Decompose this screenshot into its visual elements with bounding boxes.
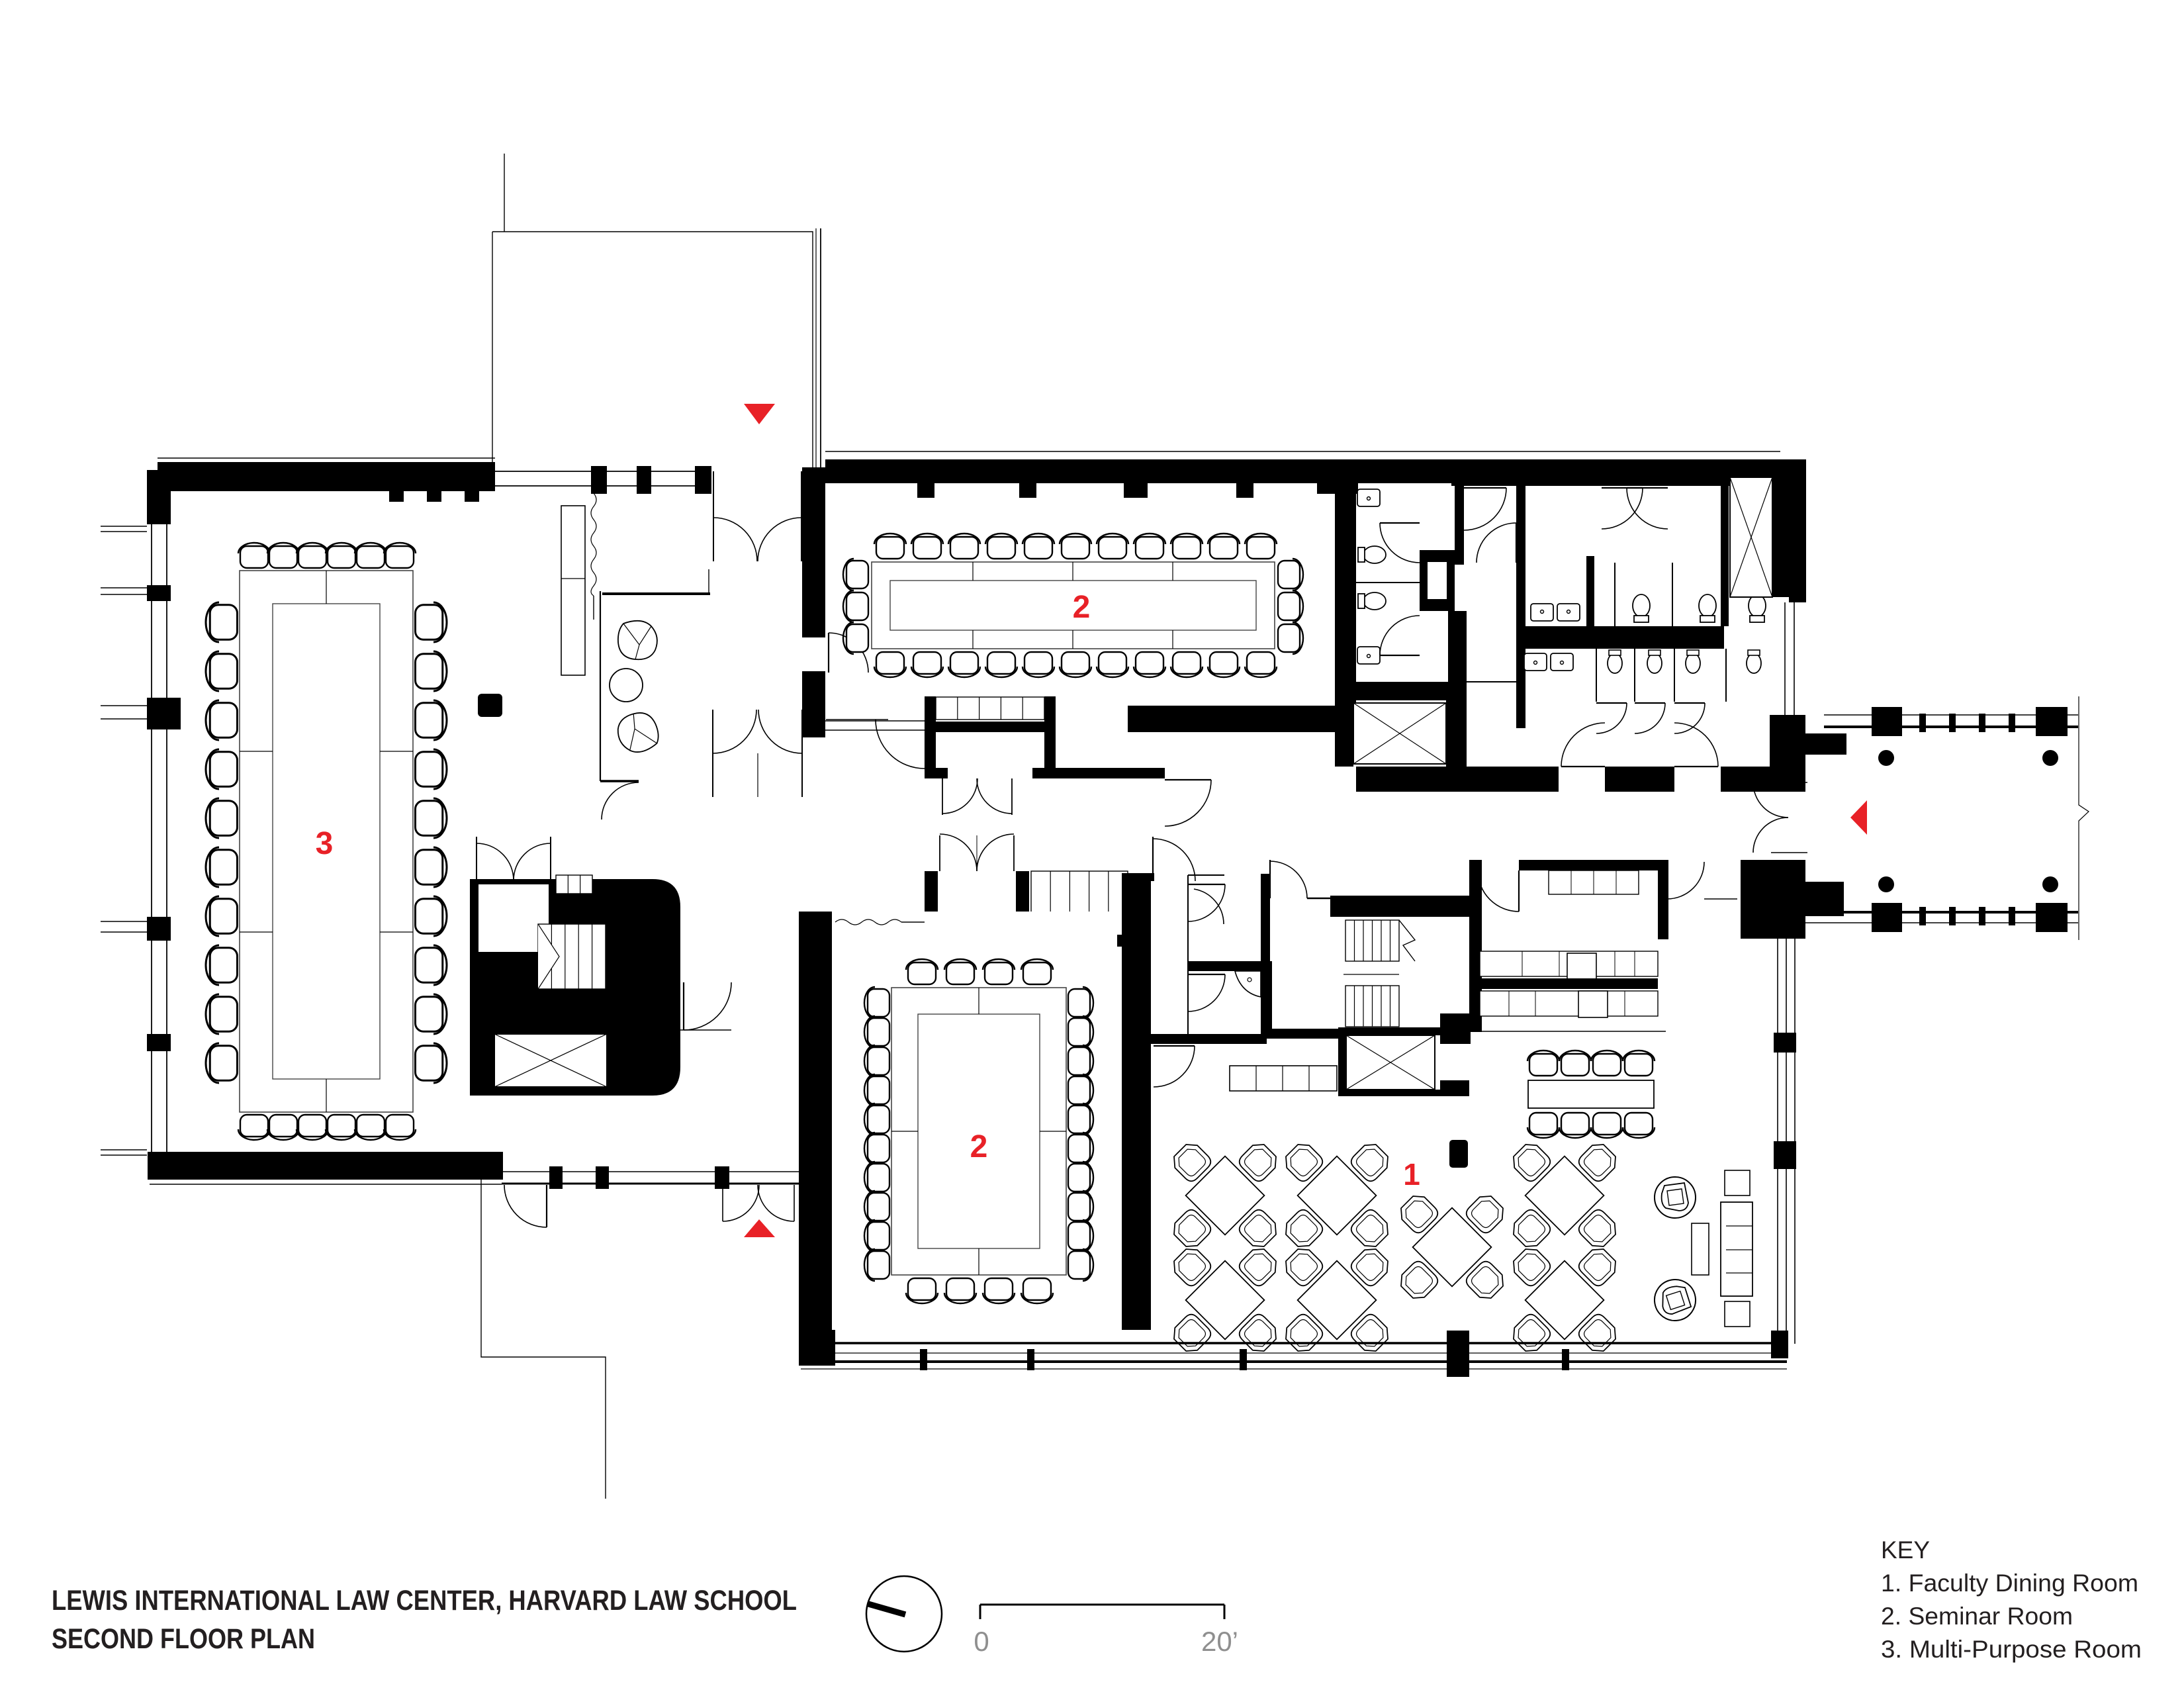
svg-text:2: 2 xyxy=(1073,590,1091,625)
svg-text:2: 2 xyxy=(970,1129,988,1164)
svg-text:3. Multi-Purpose Room: 3. Multi-Purpose Room xyxy=(1881,1636,2142,1663)
svg-text:20’: 20’ xyxy=(1201,1626,1238,1657)
svg-text:KEY: KEY xyxy=(1881,1536,1930,1564)
svg-text:1. Faculty Dining Room: 1. Faculty Dining Room xyxy=(1881,1570,2138,1597)
svg-text:SECOND FLOOR PLAN: SECOND FLOOR PLAN xyxy=(52,1623,315,1655)
svg-text:0: 0 xyxy=(974,1626,989,1657)
svg-text:3: 3 xyxy=(316,826,334,861)
svg-text:1: 1 xyxy=(1403,1157,1420,1192)
svg-text:LEWIS INTERNATIONAL LAW CENTER: LEWIS INTERNATIONAL LAW CENTER, HARVARD … xyxy=(52,1585,797,1617)
svg-text:2. Seminar Room: 2. Seminar Room xyxy=(1881,1603,2073,1630)
